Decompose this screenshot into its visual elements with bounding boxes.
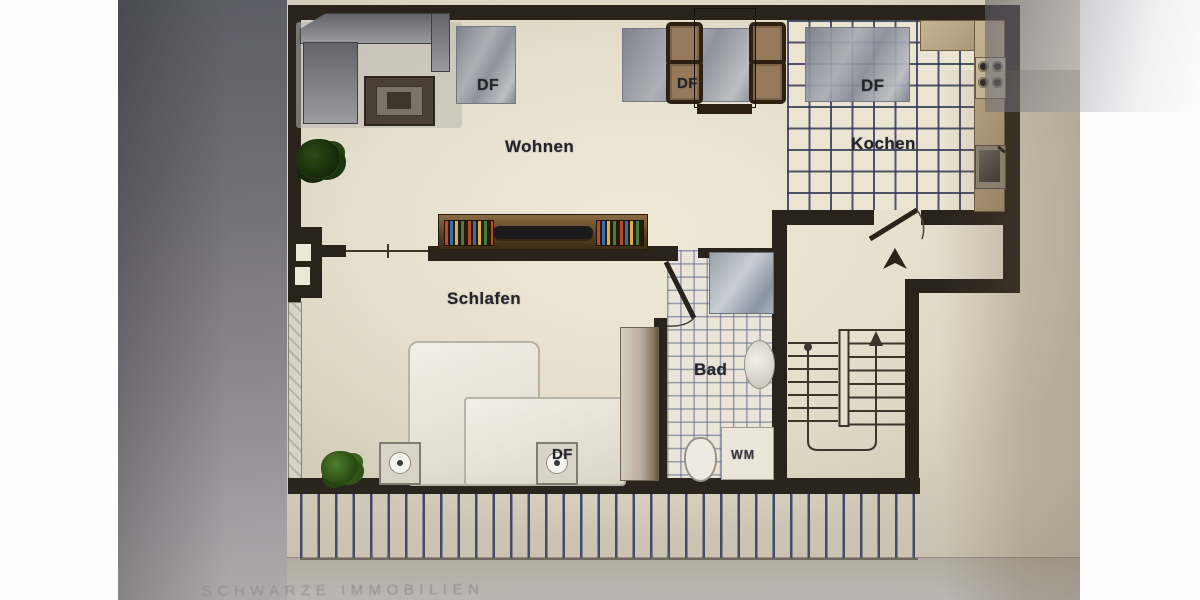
coffee-table-icon (364, 76, 435, 126)
room-label-kitchen: Kochen (851, 134, 916, 154)
desk-shadow-band (118, 0, 289, 600)
coffee-table-tray (387, 92, 411, 109)
sofa-arm (431, 13, 450, 72)
chimney (288, 227, 322, 298)
washing-machine-label: WM (731, 448, 755, 462)
sofa-icon (300, 13, 449, 44)
dining-bench (697, 104, 752, 114)
photo-of-floorplan: Wohnen Kochen Schlafen Bad DF DF DF DF W… (0, 0, 1200, 600)
chimney-stub-wall (320, 245, 346, 257)
skylight-label: DF (677, 75, 698, 92)
outer-wall-right-lower (905, 279, 919, 490)
wall-kitchen-bottom-left (772, 210, 874, 225)
watermark-text: SCHWARZE IMMOBILIEN (202, 581, 484, 600)
skylight-label: DF (861, 76, 884, 96)
sofa-chaise (303, 42, 358, 124)
books-icon (596, 220, 644, 246)
nightstand-icon (379, 442, 421, 485)
chimney-flue (295, 267, 310, 285)
skylight-label: DF (552, 446, 573, 463)
tv-sideboard-icon (438, 214, 648, 250)
knee-wall-left (288, 302, 302, 480)
books-icon (444, 220, 494, 246)
room-label-bedroom: Schlafen (447, 289, 521, 309)
bath-sink-icon (744, 340, 775, 389)
dining-table-icon (694, 8, 756, 108)
wardrobe-icon (620, 327, 659, 481)
stove-icon (975, 57, 1006, 99)
room-label-bath: Bad (694, 360, 727, 380)
chimney-flue (296, 244, 311, 261)
room-label-living: Wohnen (505, 137, 574, 157)
roof-hatch-area (300, 494, 918, 560)
tv-icon (493, 226, 593, 239)
skylight-label: DF (477, 77, 499, 95)
skylight-kitchen (805, 27, 910, 102)
toilet-icon (684, 437, 717, 482)
coffee-table-top (376, 86, 423, 116)
shower-icon (709, 252, 774, 314)
lamp-icon (389, 452, 411, 474)
kitchen-sink-icon (975, 145, 1006, 189)
outer-wall-step (905, 279, 1018, 293)
wall-bath-right (772, 220, 787, 480)
